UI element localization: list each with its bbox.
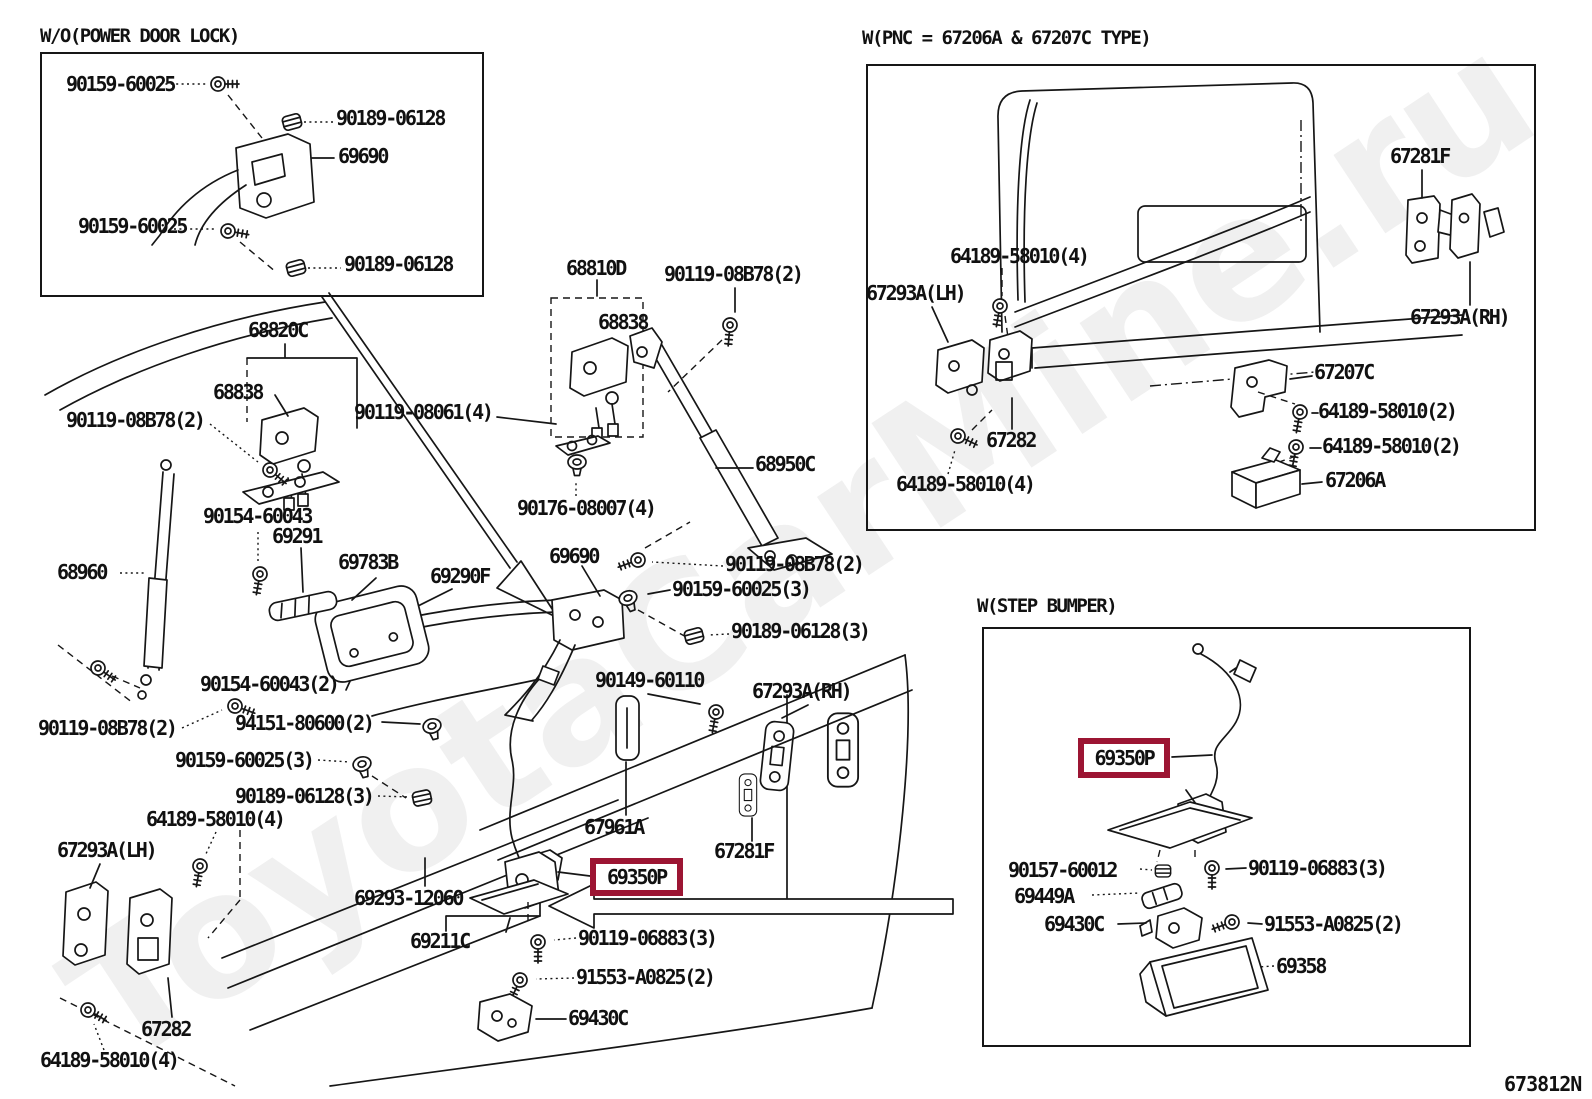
part-label: 69291: [272, 526, 321, 547]
part-label: 90154-60043(2): [200, 674, 338, 695]
part-label: 67281F: [714, 841, 773, 862]
part-label: 64189-58010(4): [146, 809, 284, 830]
highlight-leader-main: [558, 872, 590, 876]
inset-title-pnc-type: W(PNC = 67206A & 67207C TYPE): [862, 28, 1150, 49]
part-label: 68838: [598, 312, 647, 333]
part-label: 68820C: [248, 320, 307, 341]
part-label: 90176-08007(4): [517, 498, 655, 519]
part-label: 90189-06128(3): [731, 621, 869, 642]
part-label: 90119-08061(4): [354, 402, 492, 423]
part-label: 90149-60110: [595, 670, 703, 691]
inset-title-step-bumper: W(STEP BUMPER): [977, 596, 1116, 617]
part-label: 68810D: [566, 258, 625, 279]
part-label: 90119-08B78(2): [725, 554, 863, 575]
part-label: 68838: [213, 382, 262, 403]
inset-title-power-door-lock: W/O(POWER DOOR LOCK): [40, 26, 239, 47]
part-label: 90159-60025(3): [672, 579, 810, 600]
part-label: 69358: [1276, 956, 1325, 977]
inset-box-step-bumper: [982, 627, 1471, 1047]
part-label: 90119-08B78(2): [66, 410, 204, 431]
part-label: 67293A(RH): [1410, 307, 1508, 328]
part-label: 69430C: [568, 1008, 627, 1029]
part-label: 94151-80600(2): [235, 713, 373, 734]
part-label: 91553-A0825(2): [576, 967, 714, 988]
part-label: 67282: [141, 1019, 190, 1040]
part-label: 69449A: [1014, 886, 1073, 907]
part-label: 67207C: [1314, 362, 1373, 383]
part-label: 67961A: [584, 817, 643, 838]
part-label: 67206A: [1325, 470, 1384, 491]
part-label: 69211C: [410, 931, 469, 952]
part-label: 90157-60012: [1008, 860, 1116, 881]
part-label: 90159-60025(3): [175, 750, 313, 771]
part-label: 67282: [986, 430, 1035, 451]
part-label: 64189-58010(2): [1318, 401, 1456, 422]
inset-box-pnc-type: [866, 64, 1536, 531]
part-label: 69430C: [1044, 914, 1103, 935]
part-label: 90159-60025: [78, 216, 186, 237]
part-label: 91553-A0825(2): [1264, 914, 1402, 935]
part-label: 90189-06128: [336, 108, 444, 129]
part-label: 90119-06883(3): [1248, 858, 1386, 879]
part-label: 69690: [549, 546, 598, 567]
part-label: 90119-08B78(2): [664, 264, 802, 285]
part-label: 90189-06128(3): [235, 786, 373, 807]
part-label: 64189-58010(4): [40, 1050, 178, 1071]
part-label: 90189-06128: [344, 254, 452, 275]
part-label: 68960: [57, 562, 106, 583]
part-label: 67293A(LH): [57, 840, 155, 861]
part-label: 67293A(LH): [866, 283, 964, 304]
part-label: 64189-58010(4): [896, 474, 1034, 495]
part-label: 68950C: [755, 454, 814, 475]
part-label: 90119-06883(3): [578, 928, 716, 949]
part-label: 69783B: [338, 552, 397, 573]
part-label: 69290F: [430, 566, 489, 587]
diagram-code: 673812N: [1504, 1074, 1581, 1094]
part-label: 69690: [338, 146, 387, 167]
part-label: 67281F: [1390, 146, 1449, 167]
part-label: 64189-58010(2): [1322, 436, 1460, 457]
down-right-arrow: [497, 561, 558, 618]
parts-diagram-page: ToyotaCarMine.ru: [0, 0, 1592, 1099]
part-label-highlighted[interactable]: 69350P: [590, 858, 683, 896]
part-label: 64189-58010(4): [950, 246, 1088, 267]
part-label: 90159-60025: [66, 74, 174, 95]
part-label: 90119-08B78(2): [38, 718, 176, 739]
part-label: 69293-12060: [354, 888, 462, 909]
part-label: 67293A(RH): [752, 681, 850, 702]
part-label-highlighted[interactable]: 69350P: [1078, 738, 1170, 778]
